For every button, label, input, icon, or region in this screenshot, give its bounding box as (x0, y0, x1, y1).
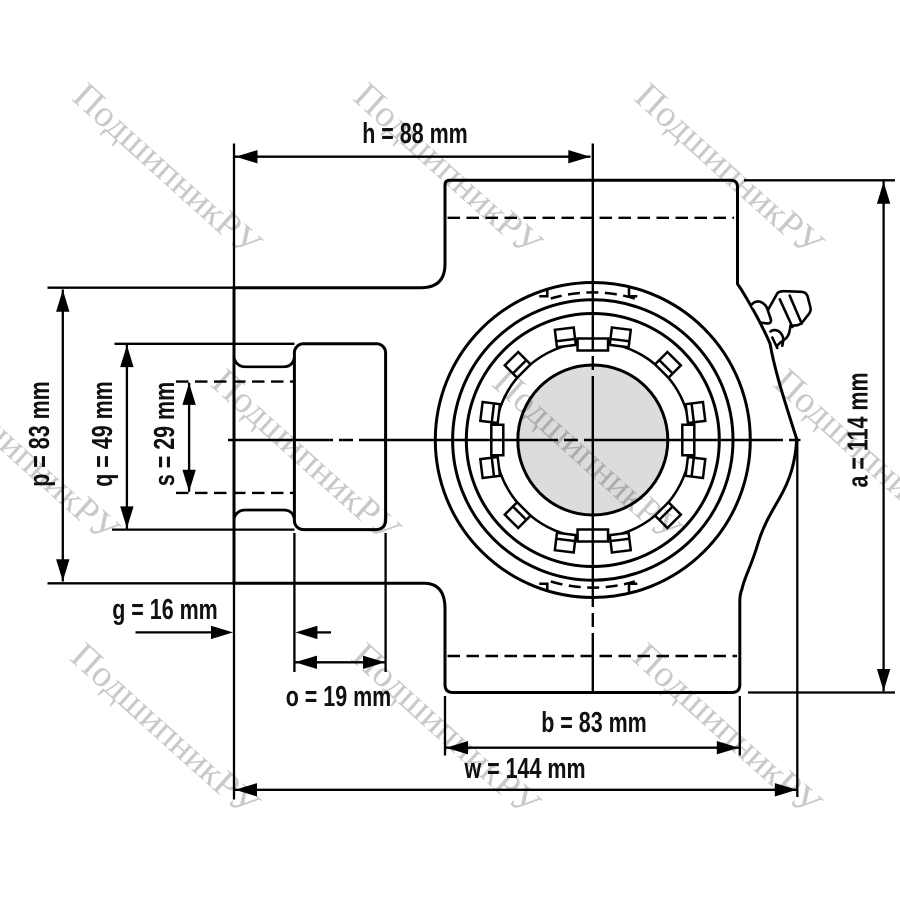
svg-text:s = 29 mm: s = 29 mm (149, 382, 181, 486)
svg-text:q = 49 mm: q = 49 mm (87, 381, 119, 487)
svg-text:b = 83 mm: b = 83 mm (541, 707, 647, 739)
svg-text:g = 16 mm: g = 16 mm (112, 594, 218, 626)
